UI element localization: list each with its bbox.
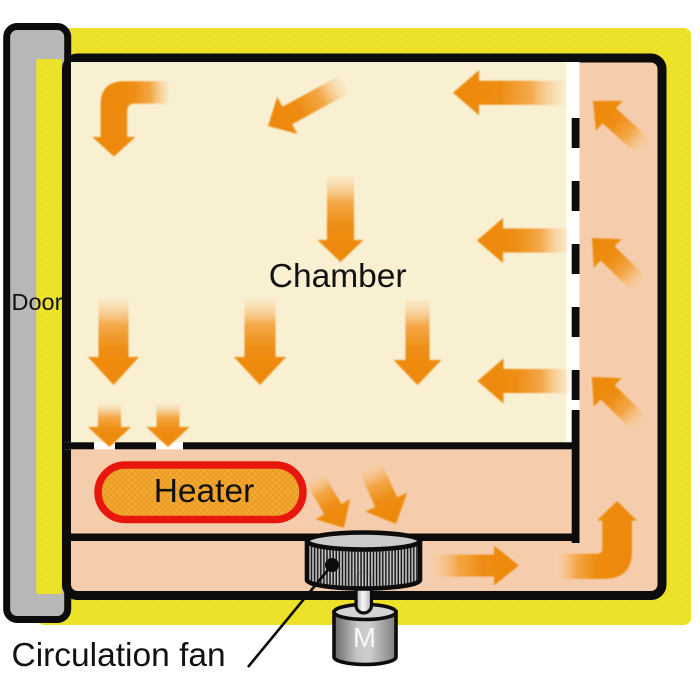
svg-text:Door: Door [12,289,63,315]
svg-text:Heater: Heater [154,473,255,510]
svg-text:M: M [353,622,376,653]
svg-text:Chamber: Chamber [269,258,407,295]
svg-text:Circulation fan: Circulation fan [12,637,226,674]
